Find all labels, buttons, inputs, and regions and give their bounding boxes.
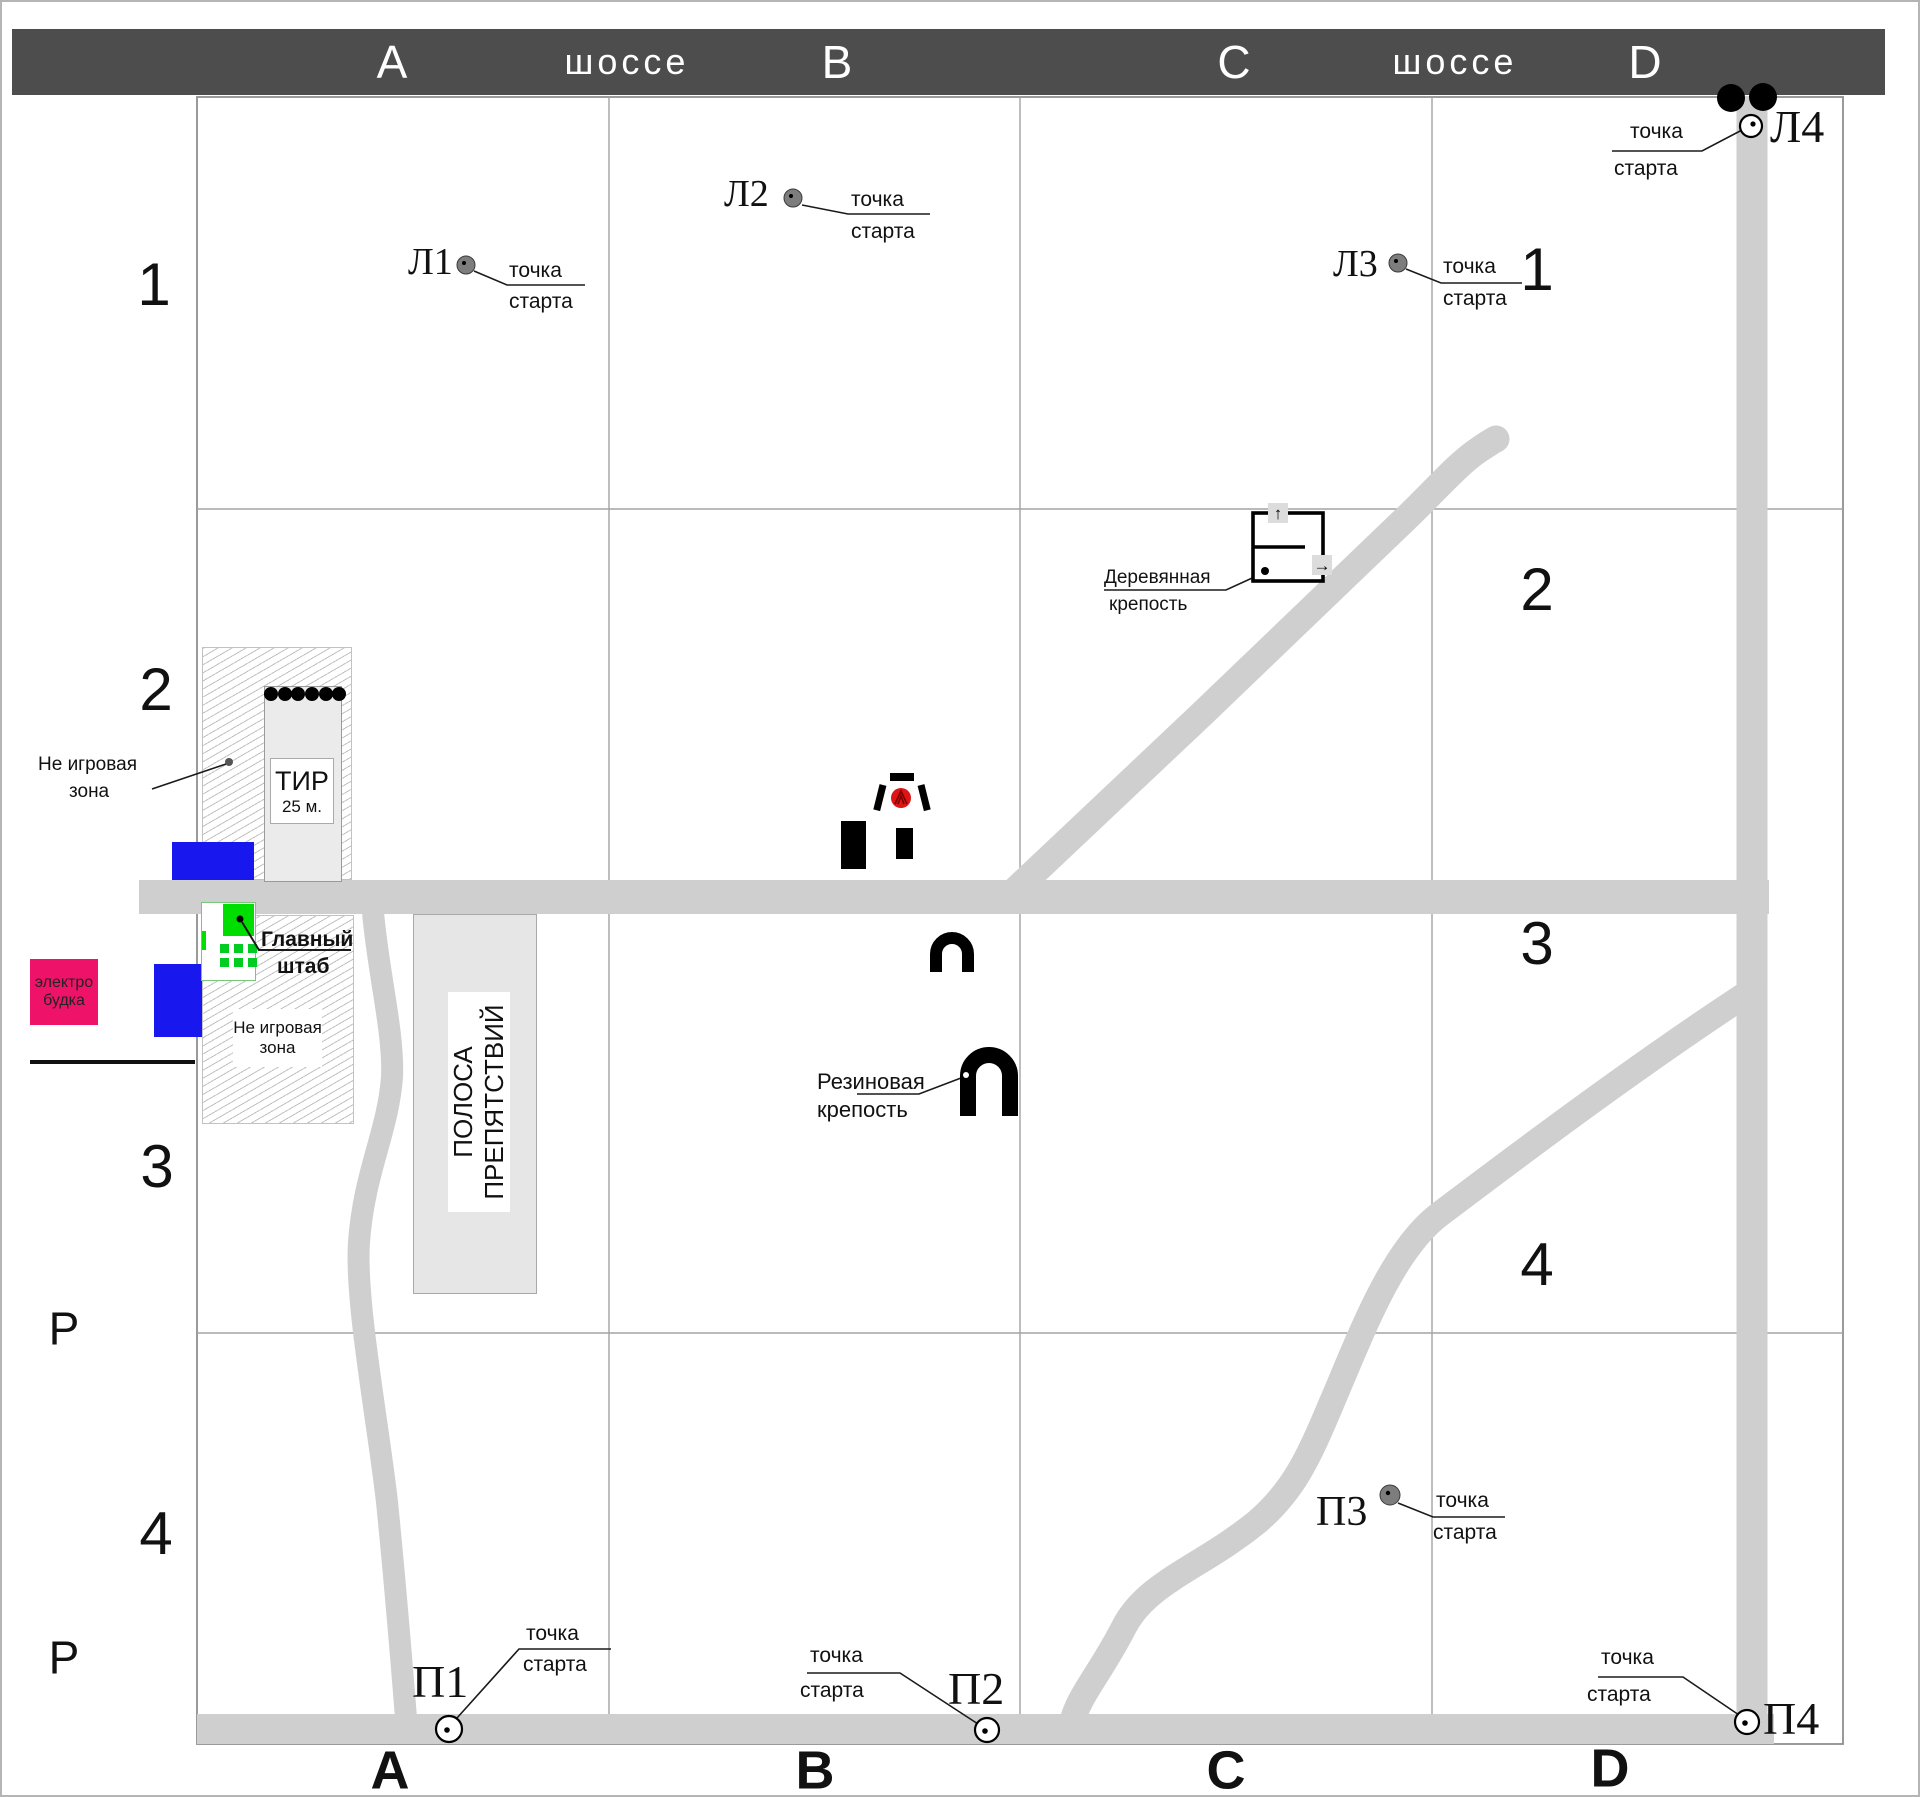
start-l1-line1: точка xyxy=(509,259,562,282)
bar-highway-label-left: шоссе xyxy=(565,41,690,83)
start-l4-line1: точка xyxy=(1630,120,1683,143)
start-name-p4: П4 xyxy=(1763,1694,1819,1745)
start-l1-line2: старта xyxy=(509,290,573,313)
tir-subtitle: 25 м. xyxy=(282,797,322,817)
hq-tent xyxy=(220,958,229,967)
obstacle-course: ПОЛОСА ПРЕПЯТСТВИЙ xyxy=(413,914,537,1294)
start-marker-l3 xyxy=(1389,254,1407,272)
nonplay-lower-line1: Не игровая xyxy=(233,1018,322,1038)
start-p3-line2: старта xyxy=(1433,1521,1497,1544)
col-label-bottom-d: D xyxy=(1591,1739,1630,1797)
hq-label-line1: Главный xyxy=(261,928,353,951)
start-name-l3: Л3 xyxy=(1333,244,1378,286)
start-p1-line1: точка xyxy=(526,1622,579,1645)
start-markers-white xyxy=(436,115,1762,1742)
start-l4-line2: старта xyxy=(1614,157,1678,180)
fortress-gate-right xyxy=(1312,555,1332,575)
nonplay-upper-line1: Не игровая xyxy=(38,755,137,776)
target-red-circle xyxy=(891,788,911,808)
row-label-left-p1: Р xyxy=(49,1304,80,1355)
start-l2-line2: старта xyxy=(851,220,915,243)
row-label-right-2: 2 xyxy=(1520,557,1553,623)
start-marker-p3 xyxy=(1380,1485,1400,1505)
electro-label-2: будка xyxy=(43,992,85,1010)
row-label-right-4: 4 xyxy=(1520,1232,1553,1298)
road-diagonal-lower xyxy=(1074,991,1751,1716)
hq-green-bar xyxy=(202,931,206,950)
target-structure-icon xyxy=(841,773,931,869)
bar-col-c: C xyxy=(1217,35,1250,89)
wooden-fortress-line2: крепость xyxy=(1109,595,1187,616)
start-name-l4: Л4 xyxy=(1770,102,1824,153)
start-p3-line1: точка xyxy=(1436,1489,1489,1512)
boundary-line xyxy=(30,1060,195,1064)
road-diagonal-upper xyxy=(1006,439,1496,899)
blue-building-lower xyxy=(154,964,202,1037)
start-p2-line1: точка xyxy=(810,1644,863,1667)
start-marker-l1 xyxy=(457,256,475,274)
row-label-left-1: 1 xyxy=(137,252,170,318)
bar-col-b: B xyxy=(822,35,853,89)
hq-tent xyxy=(248,944,257,953)
row-label-right-1: 1 xyxy=(1520,237,1553,303)
wooden-fortress-line1: Деревянная xyxy=(1104,568,1211,589)
black-building-small xyxy=(896,828,913,859)
nonplay-lower-label-box: Не игровая зона xyxy=(233,1009,322,1067)
row-label-left-4: 4 xyxy=(139,1501,172,1567)
hq-building xyxy=(223,904,254,936)
start-name-p2: П2 xyxy=(948,1664,1004,1715)
nonplay-upper-line2: зона xyxy=(69,782,109,803)
rubber-fortress-icon xyxy=(936,938,1010,1116)
start-marker-l2 xyxy=(784,189,802,207)
hq-tent xyxy=(220,944,229,953)
hq-tent xyxy=(234,958,243,967)
start-l2-line1: точка xyxy=(851,188,904,211)
electro-label-1: электро xyxy=(35,974,93,992)
start-name-l2: Л2 xyxy=(724,174,769,216)
rubber-arch-small xyxy=(936,938,968,972)
col-label-bottom-b: В xyxy=(796,1741,835,1797)
nonplay-lower-line2: зона xyxy=(260,1038,296,1058)
obstacle-line2: ПРЕПЯТСТВИЙ xyxy=(479,1004,510,1199)
rubber-arch-large xyxy=(968,1055,1010,1116)
hq-label-line2: штаб xyxy=(277,955,329,978)
obstacle-label-box: ПОЛОСА ПРЕПЯТСТВИЙ xyxy=(448,992,510,1212)
blue-building-upper xyxy=(172,842,254,880)
hq-tent xyxy=(234,944,243,953)
col-label-bottom-a: А xyxy=(371,1741,410,1797)
field-map: A шоссе B C шоссе D ТИР 25 м. электро бу… xyxy=(0,0,1920,1797)
highway-bar: A шоссе B C шоссе D xyxy=(12,29,1885,95)
start-p2-line2: старта xyxy=(800,1679,864,1702)
start-marker-p1 xyxy=(436,1716,462,1742)
obstacle-line1: ПОЛОСА xyxy=(448,1046,479,1157)
start-l3-line1: точка xyxy=(1443,255,1496,278)
tir-label-box: ТИР 25 м. xyxy=(270,758,334,824)
rubber-fortress-line1: Резиновая xyxy=(817,1070,925,1094)
col-label-bottom-c: С xyxy=(1207,1741,1246,1797)
start-name-p1: П1 xyxy=(412,1657,468,1708)
start-name-l1: Л1 xyxy=(408,242,453,284)
bar-col-d: D xyxy=(1628,35,1661,89)
row-label-left-3: 3 xyxy=(140,1134,173,1200)
start-marker-p2 xyxy=(975,1718,999,1742)
row-label-left-p2: Р xyxy=(49,1633,80,1684)
road-west-winding xyxy=(359,912,406,1718)
wooden-fortress-icon: ↑ → xyxy=(1253,503,1332,581)
rubber-fortress-line2: крепость xyxy=(817,1098,908,1122)
electro-booth: электро будка xyxy=(30,959,98,1025)
row-label-right-3: 3 xyxy=(1520,911,1553,977)
start-marker-p4 xyxy=(1735,1710,1759,1734)
start-p1-line2: старта xyxy=(523,1653,587,1676)
bar-col-a: A xyxy=(377,35,408,89)
bar-highway-label-right: шоссе xyxy=(1393,41,1518,83)
tir-title: ТИР xyxy=(275,766,329,797)
up-arrow-icon: ↑ xyxy=(1274,504,1283,523)
hq-tent xyxy=(248,958,257,967)
start-marker-l4 xyxy=(1740,115,1762,137)
start-p4-line1: точка xyxy=(1601,1646,1654,1669)
start-l3-line2: старта xyxy=(1443,287,1507,310)
start-markers-gray xyxy=(457,189,1407,1505)
start-p4-line2: старта xyxy=(1587,1683,1651,1706)
fortress-gate-top xyxy=(1268,503,1288,523)
start-name-p3: П3 xyxy=(1316,1489,1367,1535)
row-label-left-2: 2 xyxy=(139,657,172,723)
right-arrow-icon: → xyxy=(1314,556,1331,575)
black-building-large xyxy=(841,821,866,869)
